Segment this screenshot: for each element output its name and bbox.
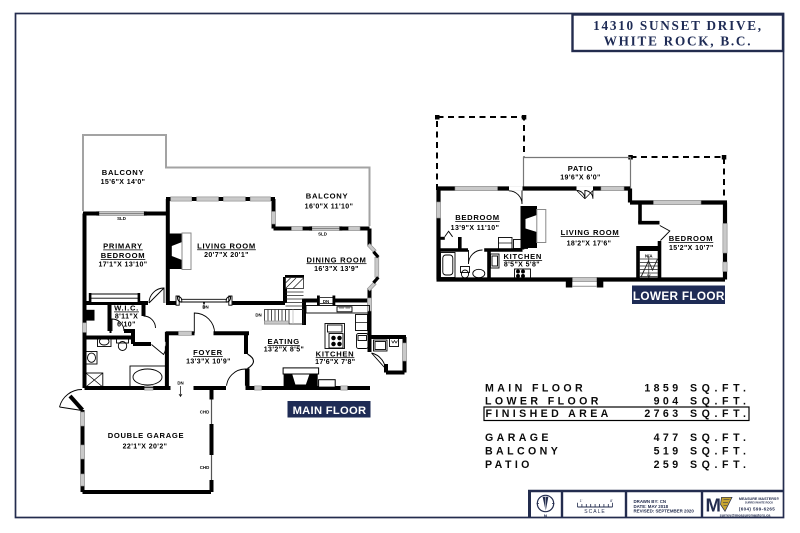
svg-text:W.I.C.: W.I.C. <box>114 304 139 313</box>
svg-text:EATING: EATING <box>268 337 300 346</box>
svg-text:CHD: CHD <box>200 410 210 415</box>
svg-text:18'2"X 17'6": 18'2"X 17'6" <box>567 240 612 247</box>
svg-text:6'10": 6'10" <box>117 322 136 329</box>
svg-text:MEASURE MASTERS®: MEASURE MASTERS® <box>739 497 779 501</box>
svg-text:19'6"X 6'0": 19'6"X 6'0" <box>560 175 600 182</box>
svg-text:LOWER FLOOR: LOWER FLOOR <box>633 289 725 303</box>
svg-text:SQ.FT.: SQ.FT. <box>690 446 751 458</box>
svg-text:REVISED: SEPTEMBER 2020: REVISED: SEPTEMBER 2020 <box>634 509 695 514</box>
svg-text:16'3"X 13'9": 16'3"X 13'9" <box>314 266 359 273</box>
svg-text:LOWER FLOOR: LOWER FLOOR <box>485 396 602 408</box>
svg-text:20'7"X 20'1": 20'7"X 20'1" <box>204 252 249 259</box>
svg-text:KITCHEN: KITCHEN <box>503 252 542 261</box>
svg-text:LIVING ROOM: LIVING ROOM <box>561 228 620 237</box>
svg-text:17'6"X 7'8": 17'6"X 7'8" <box>315 359 355 366</box>
svg-text:DN: DN <box>323 299 329 304</box>
svg-text:14310 SUNSET DRIVE,: 14310 SUNSET DRIVE, <box>593 18 763 33</box>
svg-text:1859: 1859 <box>644 383 681 395</box>
svg-text:SURREY/WHITE ROCK: SURREY/WHITE ROCK <box>745 500 773 504</box>
svg-text:16'0"X 11'10": 16'0"X 11'10" <box>305 204 354 211</box>
svg-text:1': 1' <box>580 499 583 503</box>
svg-text:13'2"X 8'5": 13'2"X 8'5" <box>264 347 304 354</box>
svg-text:BEDROOM: BEDROOM <box>669 234 714 243</box>
svg-text:8'11"X: 8'11"X <box>115 314 138 321</box>
svg-text:519: 519 <box>654 446 682 458</box>
svg-text:BEDROOM: BEDROOM <box>455 213 500 222</box>
svg-text:SQ.FT.: SQ.FT. <box>690 408 751 420</box>
svg-text:DOUBLE GARAGE: DOUBLE GARAGE <box>108 431 185 440</box>
svg-text:DN: DN <box>255 313 261 318</box>
svg-text:SCALE: SCALE <box>584 509 605 515</box>
svg-text:PRIMARY: PRIMARY <box>103 242 143 251</box>
svg-text:GARAGE: GARAGE <box>485 432 552 444</box>
svg-text:DN: DN <box>177 381 183 386</box>
svg-text:M: M <box>706 495 721 516</box>
svg-text:BALCONY: BALCONY <box>306 192 348 201</box>
svg-text:SLD: SLD <box>318 232 327 237</box>
svg-text:13'9"X 11'10": 13'9"X 11'10" <box>451 225 500 232</box>
svg-text:N/A: N/A <box>645 254 653 259</box>
svg-text:FINISHED AREA: FINISHED AREA <box>486 408 612 420</box>
svg-text:DINING ROOM: DINING ROOM <box>306 255 366 264</box>
svg-text:BALCONY: BALCONY <box>102 168 144 177</box>
svg-text:MAIN FLOOR: MAIN FLOOR <box>485 383 586 395</box>
svg-text:17'1"X 13'10": 17'1"X 13'10" <box>98 262 147 269</box>
svg-text:SQ.FT.: SQ.FT. <box>690 396 751 408</box>
svg-text:2763: 2763 <box>644 408 681 420</box>
svg-text:13'3"X 10'9": 13'3"X 10'9" <box>186 358 231 365</box>
svg-text:(604) 599-6265: (604) 599-6265 <box>739 506 775 511</box>
svg-text:DN: DN <box>202 305 208 310</box>
svg-text:904: 904 <box>654 396 682 408</box>
svg-text:PATIO: PATIO <box>485 459 533 471</box>
svg-text:SQ.FT.: SQ.FT. <box>690 432 751 444</box>
svg-text:BEDROOM: BEDROOM <box>101 251 146 260</box>
svg-text:8'5"X 5'8": 8'5"X 5'8" <box>504 262 540 269</box>
svg-text:WHITE ROCK, B.C.: WHITE ROCK, B.C. <box>604 34 753 49</box>
svg-text:MAIN FLOOR: MAIN FLOOR <box>293 405 367 417</box>
svg-text:259: 259 <box>654 459 682 471</box>
svg-text:BALCONY: BALCONY <box>485 446 561 458</box>
svg-text:PATIO: PATIO <box>568 164 594 173</box>
svg-text:477: 477 <box>654 432 682 444</box>
svg-text:15'2"X 10'7": 15'2"X 10'7" <box>669 245 714 252</box>
svg-text:CHD: CHD <box>200 465 210 470</box>
svg-text:SQ.FT.: SQ.FT. <box>690 459 751 471</box>
svg-text:22'1"X 20'2": 22'1"X 20'2" <box>123 444 168 451</box>
svg-text:SLD: SLD <box>117 216 126 221</box>
svg-text:surrey@measuremasters.ca: surrey@measuremasters.ca <box>720 513 772 517</box>
svg-text:SQ.FT.: SQ.FT. <box>690 383 751 395</box>
svg-text:KITCHEN: KITCHEN <box>316 349 355 358</box>
svg-text:8': 8' <box>610 499 613 503</box>
svg-text:FOYER: FOYER <box>193 348 223 357</box>
svg-text:15'6"X 14'0": 15'6"X 14'0" <box>101 179 146 186</box>
svg-text:LIVING ROOM: LIVING ROOM <box>197 241 256 250</box>
